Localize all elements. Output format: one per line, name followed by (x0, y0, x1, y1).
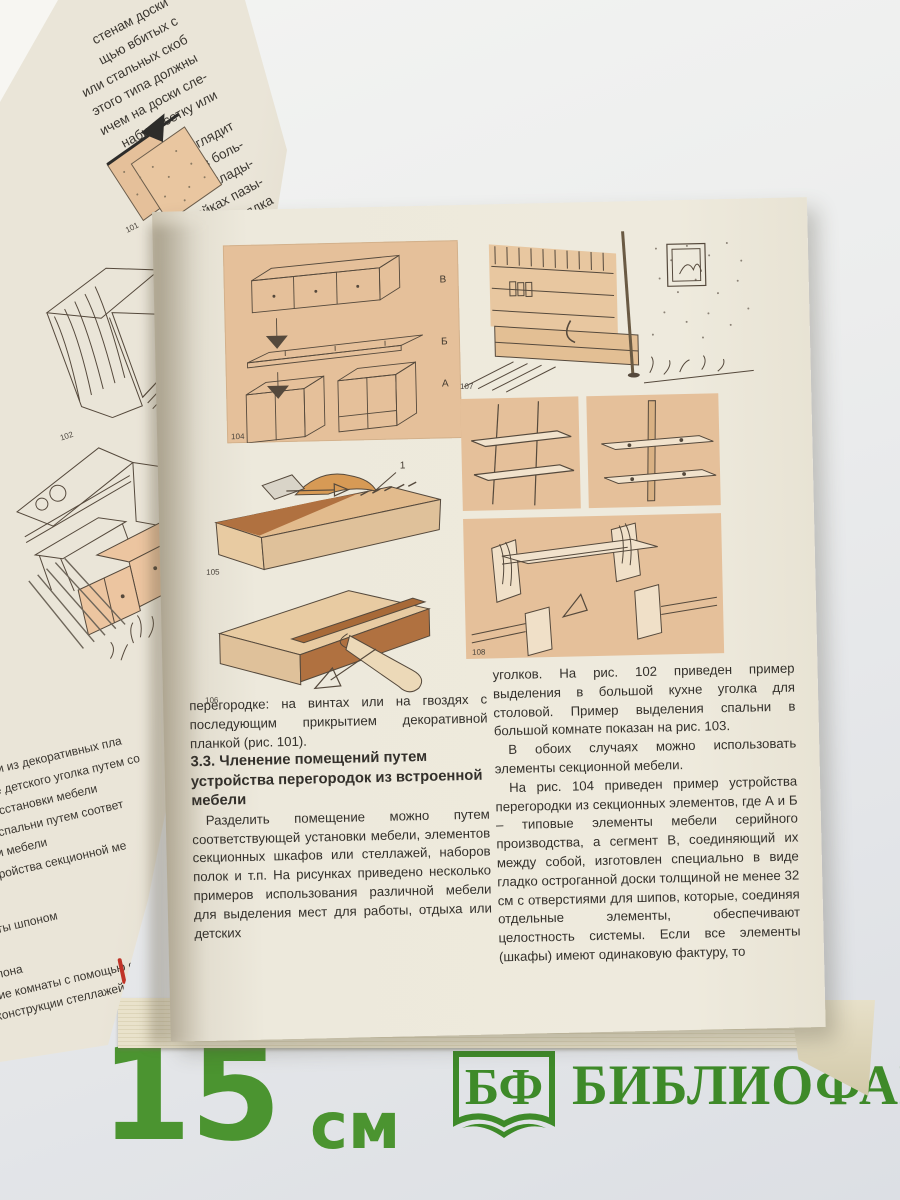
open-book-logo-icon: БФ (450, 1048, 558, 1148)
figure-104-label-top: В (439, 274, 446, 285)
ruler-unit: см (310, 1090, 400, 1164)
figure-108: 108 (458, 391, 726, 661)
figure-104: В Б А 104 (223, 240, 462, 443)
right-page-column-1: перегородке: на винтах или на гвоздях с … (189, 691, 493, 944)
right-page: В Б А 104 1 105 (152, 197, 826, 1042)
paragraph: перегородке: на винтах или на гвоздях с … (189, 691, 488, 754)
figure-105-number: 105 (206, 568, 220, 577)
figure-108-number: 108 (472, 648, 486, 657)
paragraph: Разделить помещение можно путем соответс… (192, 805, 493, 943)
figure-105: 1 105 (199, 447, 454, 579)
paragraph: На рис. 104 приведен пример устройства п… (495, 772, 801, 967)
figure-104-number: 104 (231, 432, 245, 441)
figure-106: 106 (198, 573, 457, 711)
figure-107: 107 (450, 220, 759, 395)
figure-104-label-bottom: А (442, 378, 449, 389)
right-page-column-2: уголков. На рис. 102 приведен пример выд… (492, 660, 801, 968)
figure-107-number: 107 (460, 382, 474, 391)
logo-abbr: БФ (465, 1059, 543, 1116)
figure-101-number: 101 (124, 220, 140, 234)
paragraph: уголков. На рис. 102 приведен пример выд… (492, 660, 796, 742)
figure-105-callout: 1 (400, 460, 406, 471)
figure-104-label-middle: Б (441, 336, 448, 347)
section-heading: 3.3. Членение помещений путем устройства… (190, 747, 489, 812)
